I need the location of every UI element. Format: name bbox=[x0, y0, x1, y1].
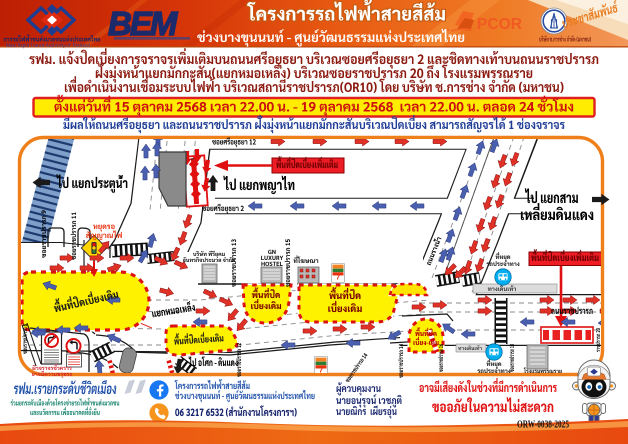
svg-text:PCOR: PCOR bbox=[477, 16, 522, 33]
svg-text:ORW-0038-2025: ORW-0038-2025 bbox=[517, 420, 569, 431]
svg-text:BEM: BEM bbox=[108, 5, 179, 42]
